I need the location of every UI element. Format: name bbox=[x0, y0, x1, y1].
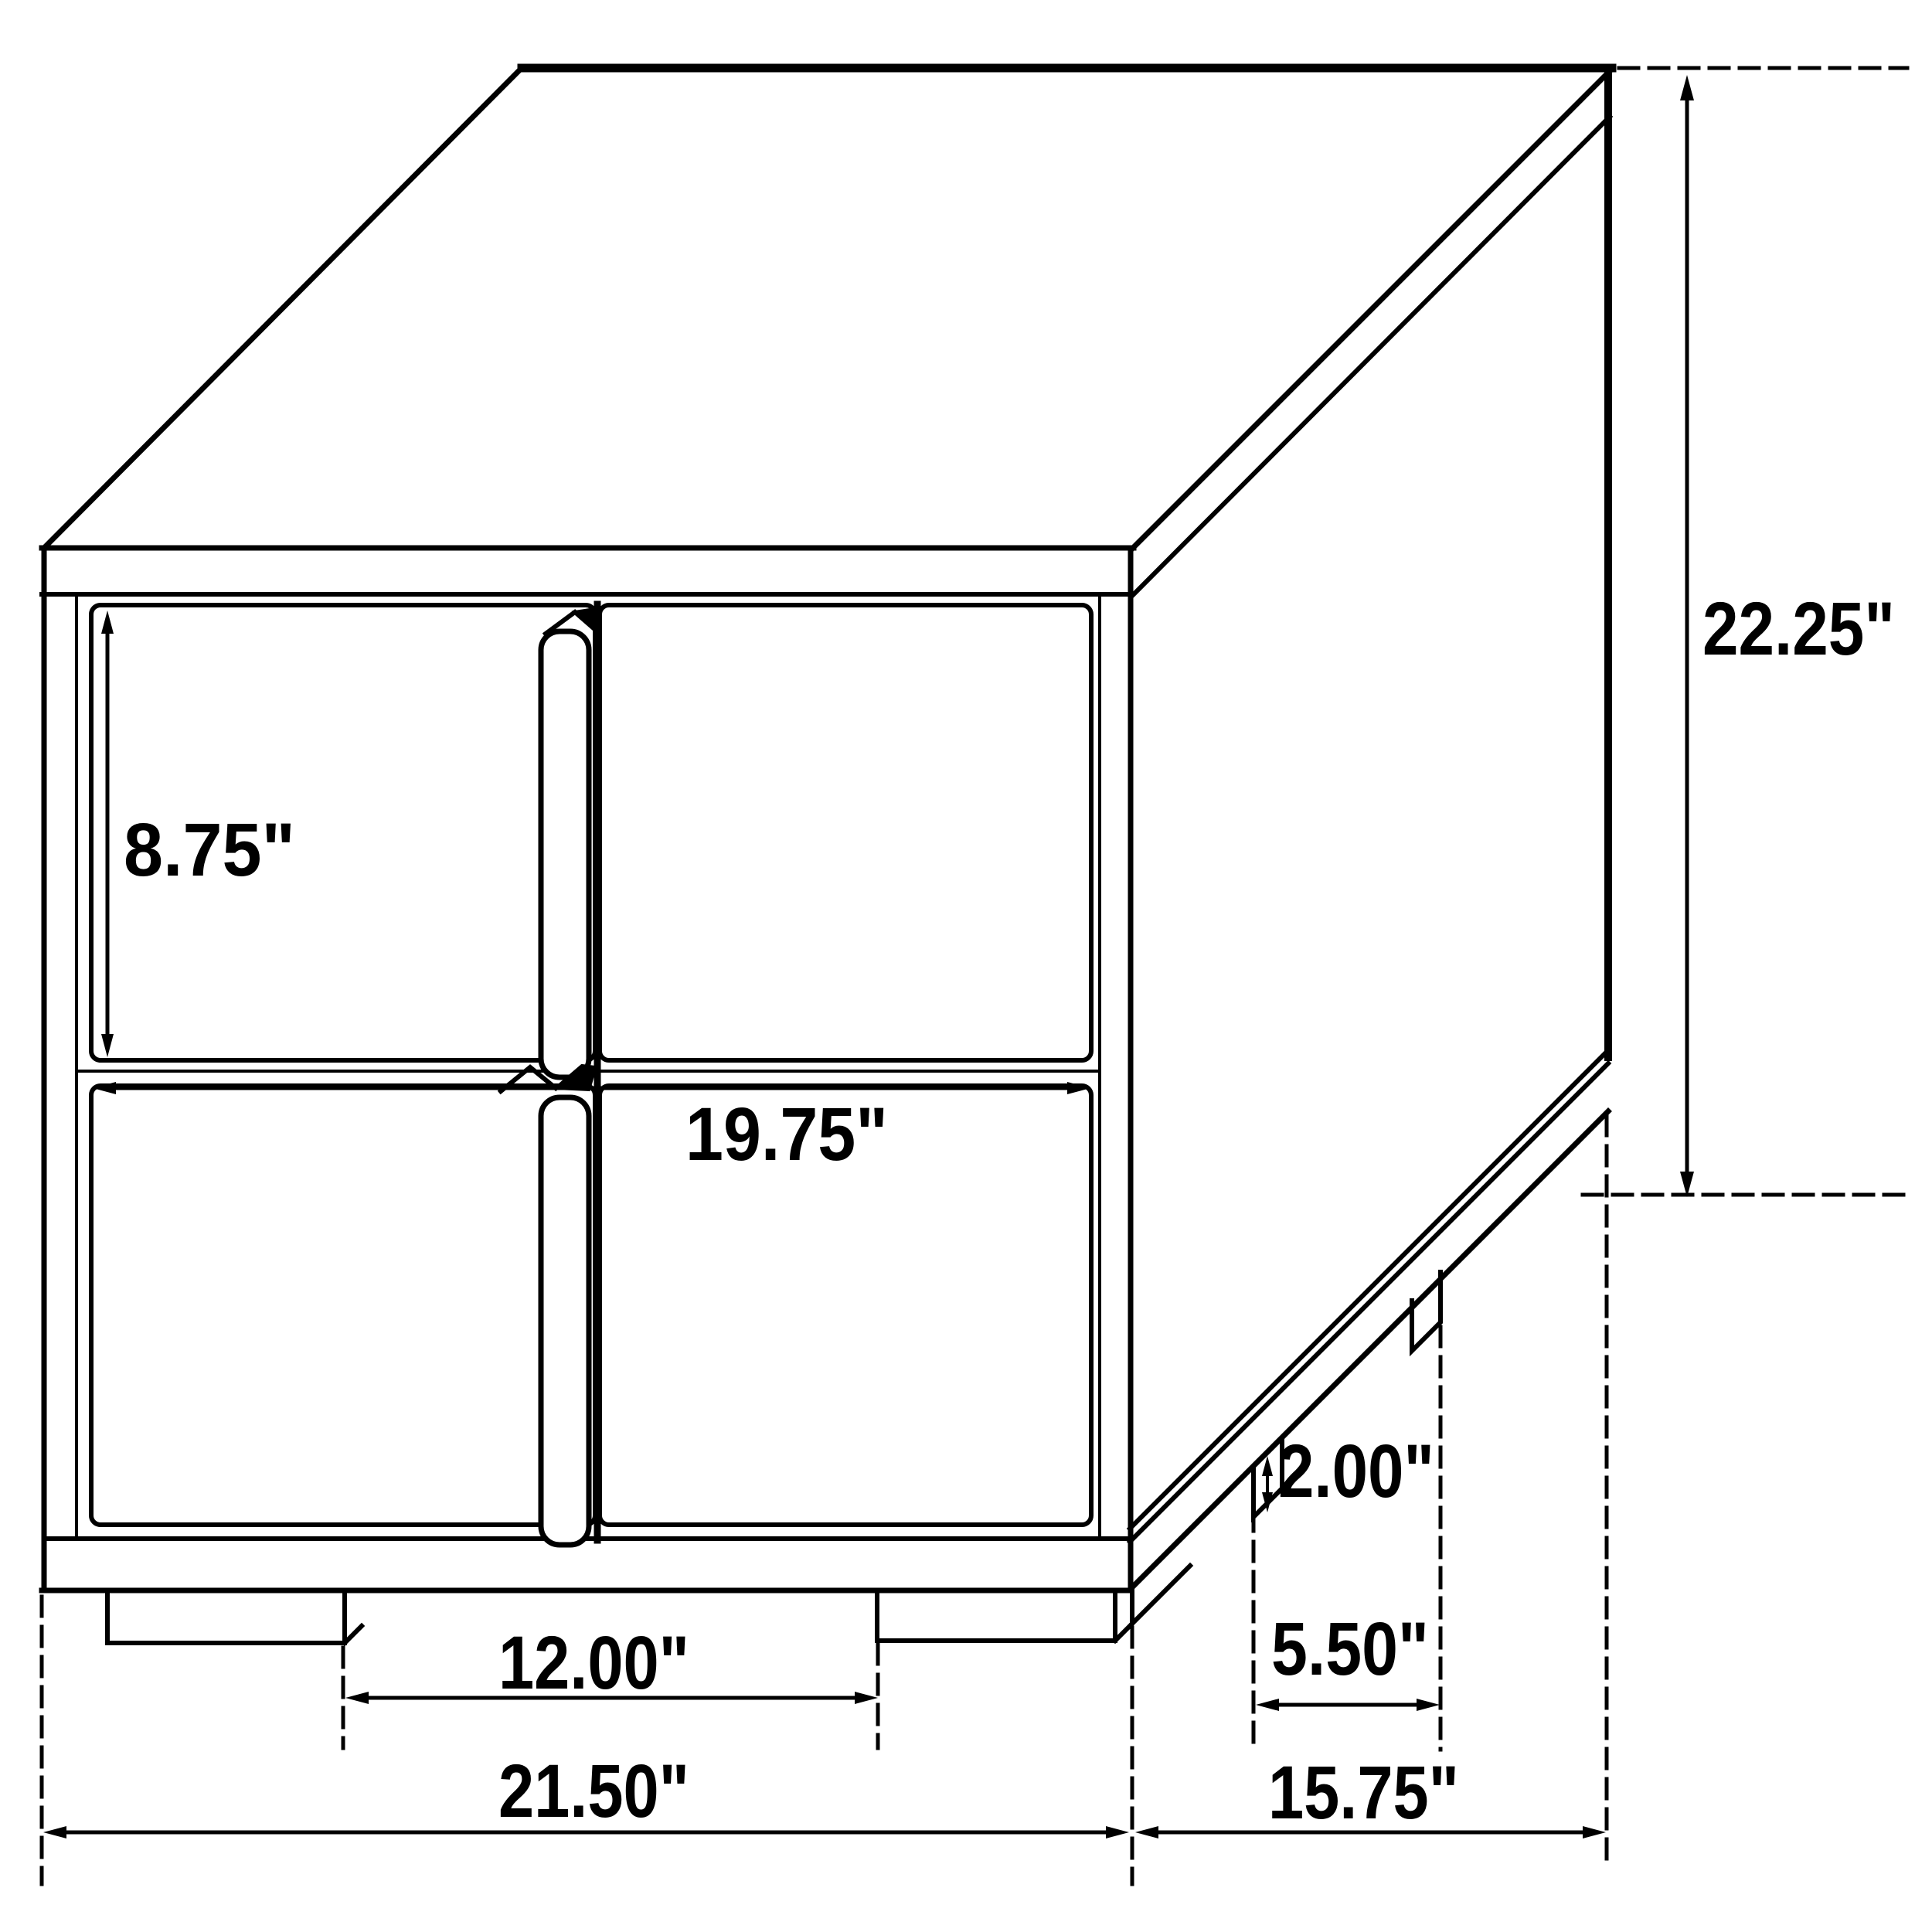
svg-text:19.75": 19.75" bbox=[685, 1092, 888, 1176]
svg-text:21.50": 21.50" bbox=[498, 1749, 689, 1833]
svg-text:22.25": 22.25" bbox=[1702, 587, 1895, 671]
svg-text:15.75": 15.75" bbox=[1268, 1750, 1459, 1835]
svg-text:5.50": 5.50" bbox=[1271, 1607, 1429, 1691]
svg-text:8.75": 8.75" bbox=[124, 808, 295, 892]
svg-text:2.00": 2.00" bbox=[1278, 1429, 1434, 1513]
svg-text:12.00": 12.00" bbox=[498, 1621, 689, 1705]
